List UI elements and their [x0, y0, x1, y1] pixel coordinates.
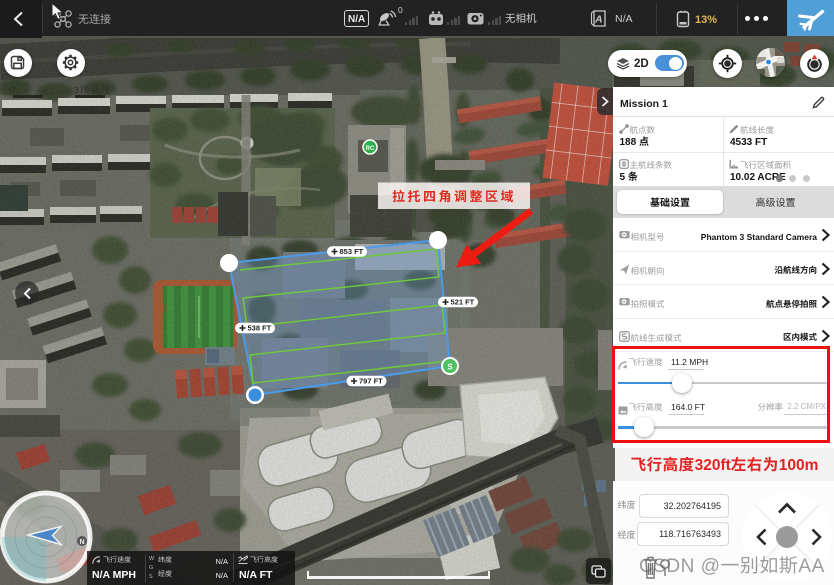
- svg-text:N: N: [79, 539, 84, 546]
- svg-text:A: A: [594, 14, 603, 26]
- svg-text:853 FT: 853 FT: [340, 247, 364, 256]
- svg-text:S: S: [447, 363, 453, 372]
- svg-text:521 FT: 521 FT: [451, 298, 475, 307]
- svg-text:拉托四角调整区域: 拉托四角调整区域: [392, 186, 516, 205]
- svg-text:797 FT: 797 FT: [359, 377, 383, 386]
- svg-text:538 FT: 538 FT: [248, 324, 272, 333]
- svg-text:RC: RC: [366, 146, 375, 152]
